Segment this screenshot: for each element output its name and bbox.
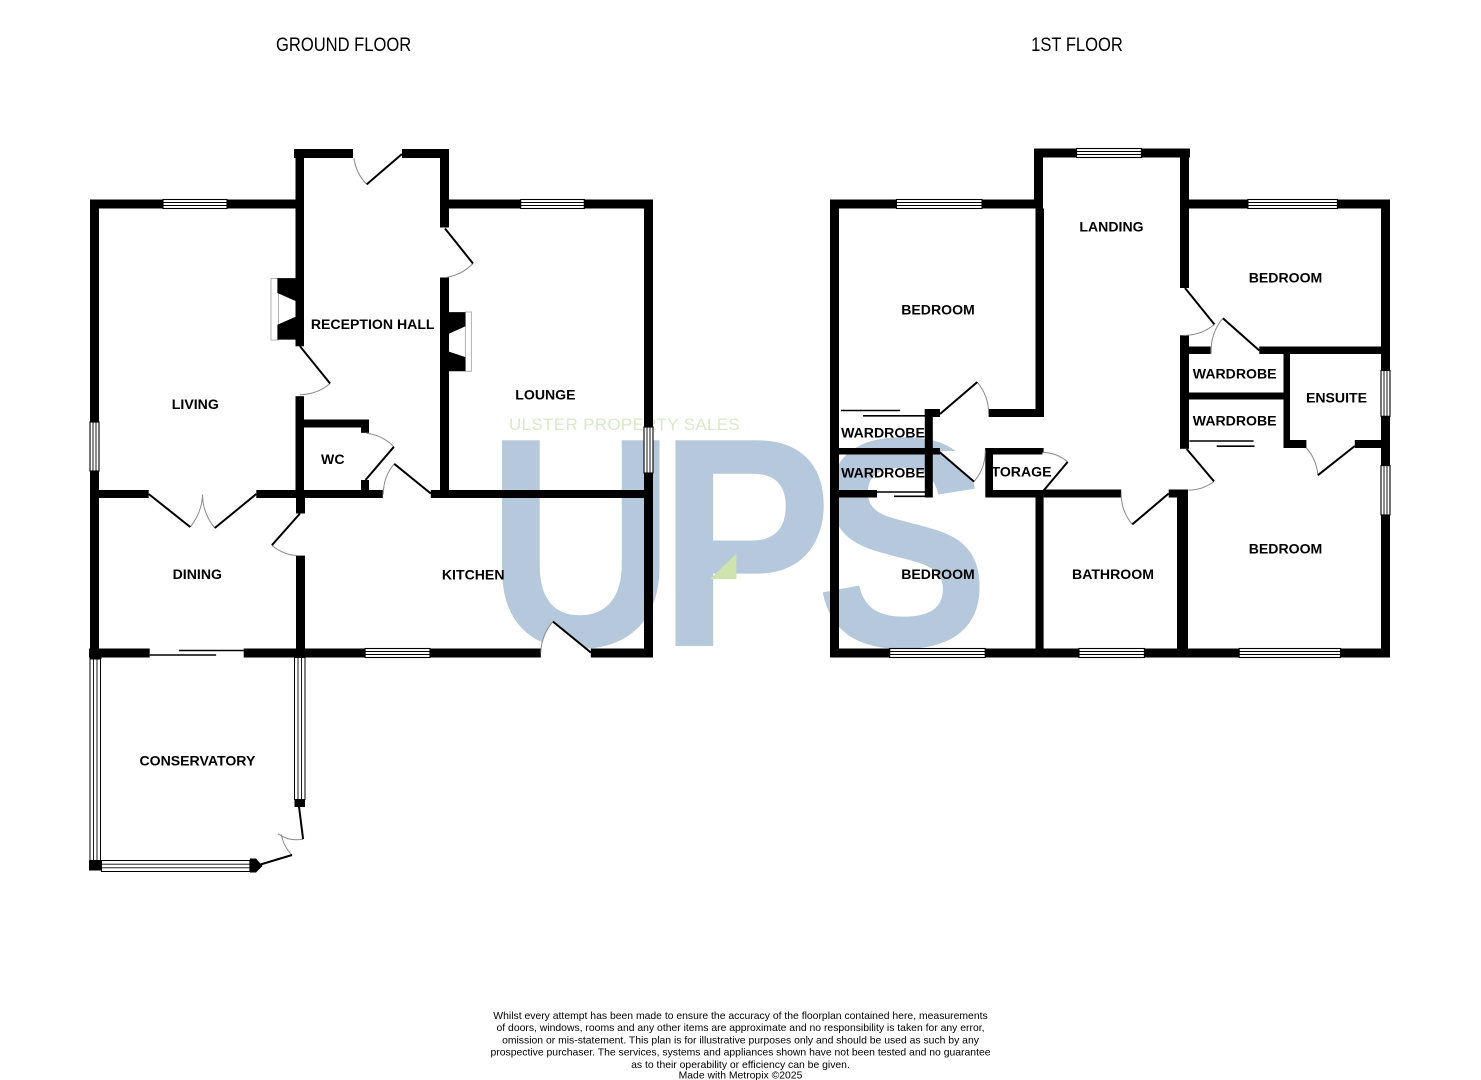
svg-text:BEDROOM: BEDROOM (1249, 270, 1323, 286)
svg-text:LOUNGE: LOUNGE (515, 387, 575, 403)
svg-text:WARDROBE: WARDROBE (841, 425, 925, 441)
svg-text:of doors, windows, rooms and a: of doors, windows, rooms and any other i… (496, 1023, 984, 1034)
svg-text:WARDROBE: WARDROBE (1193, 366, 1277, 382)
svg-text:Whilst every attempt has been: Whilst every attempt has been made to en… (493, 1011, 987, 1022)
svg-text:as to their operability or eff: as to their operability or efficiency ca… (631, 1060, 850, 1071)
svg-text:Made with Metropix ©2025: Made with Metropix ©2025 (679, 1071, 803, 1080)
svg-text:TORAGE: TORAGE (991, 464, 1051, 480)
svg-text:WARDROBE: WARDROBE (1193, 413, 1277, 429)
svg-text:GROUND FLOOR: GROUND FLOOR (276, 34, 411, 56)
svg-text:BEDROOM: BEDROOM (901, 302, 975, 318)
svg-text:BEDROOM: BEDROOM (1249, 541, 1323, 557)
svg-text:LIVING: LIVING (172, 396, 219, 412)
svg-text:KITCHEN: KITCHEN (442, 567, 505, 583)
svg-text:1ST FLOOR: 1ST FLOOR (1031, 34, 1123, 56)
svg-text:WC: WC (321, 451, 344, 467)
svg-text:ENSUITE: ENSUITE (1306, 390, 1367, 406)
svg-text:WARDROBE: WARDROBE (841, 465, 925, 481)
svg-text:prospective purchaser. The ser: prospective purchaser. The services, sys… (490, 1048, 990, 1059)
svg-text:RECEPTION HALL: RECEPTION HALL (311, 316, 435, 332)
svg-text:BEDROOM: BEDROOM (901, 566, 975, 582)
svg-text:LANDING: LANDING (1079, 219, 1143, 235)
svg-text:omission or mis-statement. Thi: omission or mis-statement. This plan is … (502, 1035, 980, 1046)
svg-text:BATHROOM: BATHROOM (1072, 566, 1154, 582)
svg-text:CONSERVATORY: CONSERVATORY (139, 753, 256, 769)
svg-text:DINING: DINING (173, 566, 222, 582)
